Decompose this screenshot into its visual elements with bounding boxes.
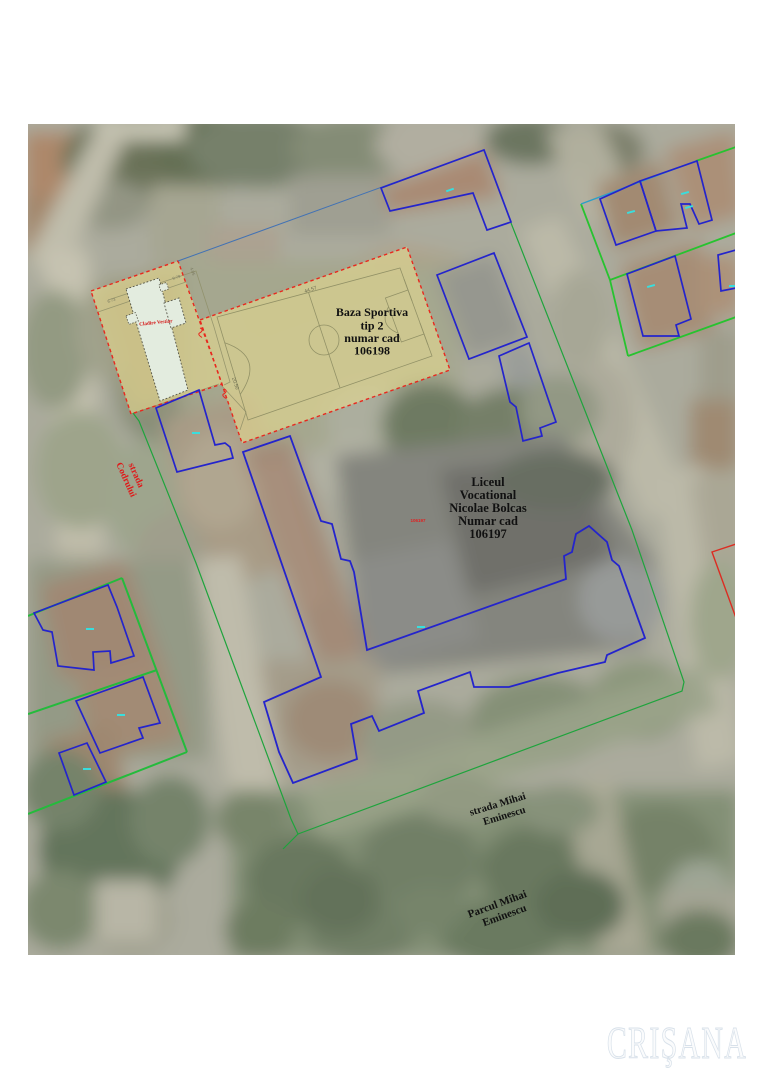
- svg-text:Liceul: Liceul: [471, 475, 505, 489]
- svg-text:106198: 106198: [354, 344, 390, 358]
- svg-text:106197: 106197: [410, 518, 426, 523]
- svg-text:106197: 106197: [469, 527, 507, 541]
- svg-text:Vocational: Vocational: [460, 488, 517, 502]
- svg-text:Baza Sportiva: Baza Sportiva: [336, 305, 408, 319]
- svg-text:Nicolae Bolcas: Nicolae Bolcas: [449, 501, 527, 515]
- svg-text:Numar cad: Numar cad: [458, 514, 518, 528]
- svg-text:CRIŞANA: CRIŞANA: [607, 1018, 747, 1069]
